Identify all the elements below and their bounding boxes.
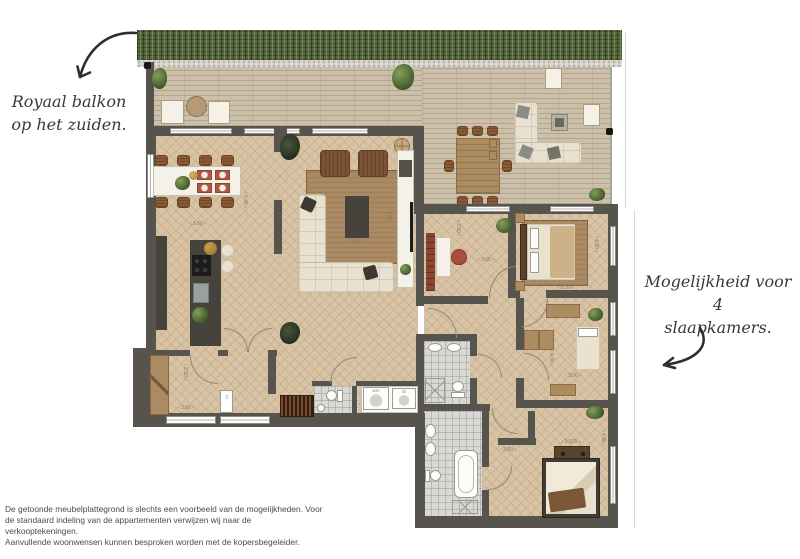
dining-chair — [177, 155, 190, 166]
window — [166, 416, 216, 424]
outdoor-chair — [487, 126, 498, 136]
disclaimer-line2: de standaard indeling van de appartement… — [5, 515, 325, 537]
window — [610, 446, 616, 504]
round-side-table — [186, 96, 207, 117]
dimension-label: ‹ 4.60 › — [593, 236, 598, 252]
annotation-balcony-line2: op het zuiden. — [0, 113, 138, 136]
bookshelf — [426, 233, 435, 291]
washing-machine-label: wm — [363, 389, 389, 394]
bed-pillow — [530, 252, 539, 273]
hand-basin — [317, 404, 325, 412]
dining-chair — [199, 155, 212, 166]
coffee-table — [345, 196, 369, 238]
cooktop — [192, 255, 211, 276]
wall-hall-right — [268, 350, 276, 394]
window — [610, 350, 616, 394]
outdoor-chair — [502, 160, 512, 172]
bed-blanket — [550, 226, 574, 278]
dimension-label: ‹ 2.50 › — [182, 364, 187, 380]
dimension-label: ‹ 5.60 › — [332, 240, 376, 245]
gravel-strip — [137, 60, 622, 67]
property-line — [634, 210, 635, 528]
dresser — [524, 330, 554, 350]
placemat — [197, 170, 212, 180]
wall-living-balcony — [413, 126, 424, 212]
dimension-label: ‹ 3.625 › — [548, 440, 594, 445]
dimension-label: ‹ 3.05 › — [386, 208, 391, 224]
meter-cupboard-label: m — [224, 395, 229, 399]
wall-bedroom2-bottom — [516, 400, 618, 408]
bar-stool — [221, 260, 234, 273]
window — [312, 128, 368, 134]
dining-chair — [177, 197, 190, 208]
toilet-cistern — [337, 390, 343, 402]
armchair — [358, 150, 388, 177]
kitchen-wall-counter — [156, 236, 167, 330]
window — [466, 206, 510, 212]
cushion — [516, 105, 530, 119]
indoor-plant — [586, 406, 604, 419]
toilet-cistern — [451, 392, 465, 398]
toilet-bowl — [326, 390, 337, 401]
dryer-label: dr — [392, 390, 416, 395]
curved-arrow-icon — [652, 324, 716, 374]
annotation-balcony-line1: Royaal balkon — [0, 90, 138, 113]
toilet-bowl — [452, 381, 464, 392]
shower — [452, 500, 478, 514]
property-line — [625, 32, 626, 208]
wall-toilet-right — [352, 386, 357, 413]
shower — [425, 378, 445, 403]
planter-pot — [489, 139, 497, 148]
bar-stool — [221, 244, 234, 257]
armchair — [320, 150, 350, 177]
kitchen-sink — [193, 283, 209, 303]
dimension-label: ‹ 5.60 › — [168, 222, 228, 227]
wall-master-bottom — [546, 290, 618, 298]
fruit-bowl — [189, 171, 198, 180]
washbasin — [447, 343, 461, 352]
indoor-plant — [496, 218, 513, 233]
exterior-wall-step — [415, 413, 425, 523]
window — [550, 206, 594, 212]
built-in-appliance — [399, 160, 412, 177]
placemat — [215, 183, 230, 193]
dining-chair — [221, 197, 234, 208]
exterior-wall-corner — [133, 348, 148, 421]
railing-post — [606, 128, 613, 135]
bed-pillow — [578, 328, 598, 337]
railing-post — [144, 62, 151, 69]
toilet-bowl — [430, 470, 441, 481]
nightstand — [515, 213, 525, 223]
glass-railing — [610, 67, 612, 204]
wall-bathroom2-right — [482, 490, 489, 516]
window — [610, 302, 616, 336]
dimension-label: ‹ 2.00 › — [490, 448, 526, 453]
lounge-chair — [583, 104, 600, 126]
dining-chair — [155, 197, 168, 208]
balcony-plant — [152, 68, 167, 89]
fire-table-top — [555, 118, 564, 127]
desk-chair — [451, 249, 467, 265]
outdoor-chair — [444, 160, 454, 172]
washbasin — [428, 343, 442, 352]
curved-arrow-icon — [66, 26, 140, 86]
table-plant — [175, 176, 190, 190]
bathtub-inner — [458, 455, 474, 493]
dimension-label: ‹ 3.00 › — [553, 374, 593, 379]
desk — [436, 237, 451, 277]
wall-bathroom1-right — [470, 334, 477, 356]
dining-chair — [155, 155, 168, 166]
dimension-label: ‹ 4.50 › — [600, 430, 605, 446]
dimension-label: ‹ 5.40 › — [242, 192, 247, 208]
bed-pillow — [530, 228, 539, 249]
washbasin — [425, 424, 436, 438]
lounge-chair — [545, 68, 562, 89]
dining-chair — [221, 155, 234, 166]
meter-cupboard — [220, 390, 233, 413]
sofa — [298, 262, 394, 293]
bench — [550, 384, 576, 396]
outdoor-chair — [472, 126, 483, 136]
bed-headboard — [520, 224, 527, 280]
indoor-plant — [400, 264, 411, 275]
planter-pot — [489, 151, 497, 160]
balcony-plant — [589, 188, 605, 201]
annotation-bedrooms-line1: Mogelijkheid voor 4 — [638, 270, 798, 316]
wall-bathroom2-right — [482, 411, 489, 467]
placemat — [215, 170, 230, 180]
window — [610, 226, 616, 266]
dining-chair — [199, 197, 212, 208]
wine-rack — [280, 395, 314, 417]
column — [274, 200, 282, 254]
dimension-label: ‹ 4.00 › — [548, 350, 553, 366]
outdoor-chair — [457, 126, 468, 136]
tv — [410, 202, 413, 252]
nightstand — [515, 281, 525, 291]
lounge-chair — [161, 100, 184, 124]
wall-living-rooms — [416, 212, 424, 306]
console-table — [546, 304, 580, 318]
kitchen-plant — [192, 307, 208, 323]
wall-toilet-top — [312, 381, 332, 386]
annotation-balcony: Royaal balkon op het zuiden. — [0, 90, 138, 136]
wall-bathrooms-divider — [416, 404, 490, 411]
lounge-chair — [208, 101, 230, 124]
fruit-bowl — [204, 242, 217, 255]
disclaimer-line3: Aanvullende woonwensen kunnen besproken … — [5, 537, 325, 548]
floor-plan-page: m wm dr ‹ 5.60 › ‹ 5.40 › ‹ 5.60 › — [0, 0, 800, 559]
hedge-strip — [137, 30, 622, 60]
window — [170, 128, 232, 134]
dimension-label: ‹ 3.70 › — [545, 286, 585, 291]
disclaimer: De getoonde meubelplattegrond is slechts… — [5, 504, 325, 548]
dimension-label: ‹ 3.05 › — [466, 258, 506, 263]
window — [220, 416, 270, 424]
wall-bedroom3-stub — [528, 411, 535, 441]
balcony-plant — [392, 64, 414, 90]
washbasin — [425, 442, 436, 456]
placemat — [197, 183, 212, 193]
indoor-plant — [588, 308, 603, 321]
dimension-label: ‹ 3.60 › — [455, 220, 460, 236]
disclaimer-line1: De getoonde meubelplattegrond is slechts… — [5, 504, 325, 515]
dimension-label: ‹ 2.60 › — [162, 406, 210, 411]
cushion — [547, 146, 561, 160]
wall-study-bottom — [424, 296, 488, 304]
